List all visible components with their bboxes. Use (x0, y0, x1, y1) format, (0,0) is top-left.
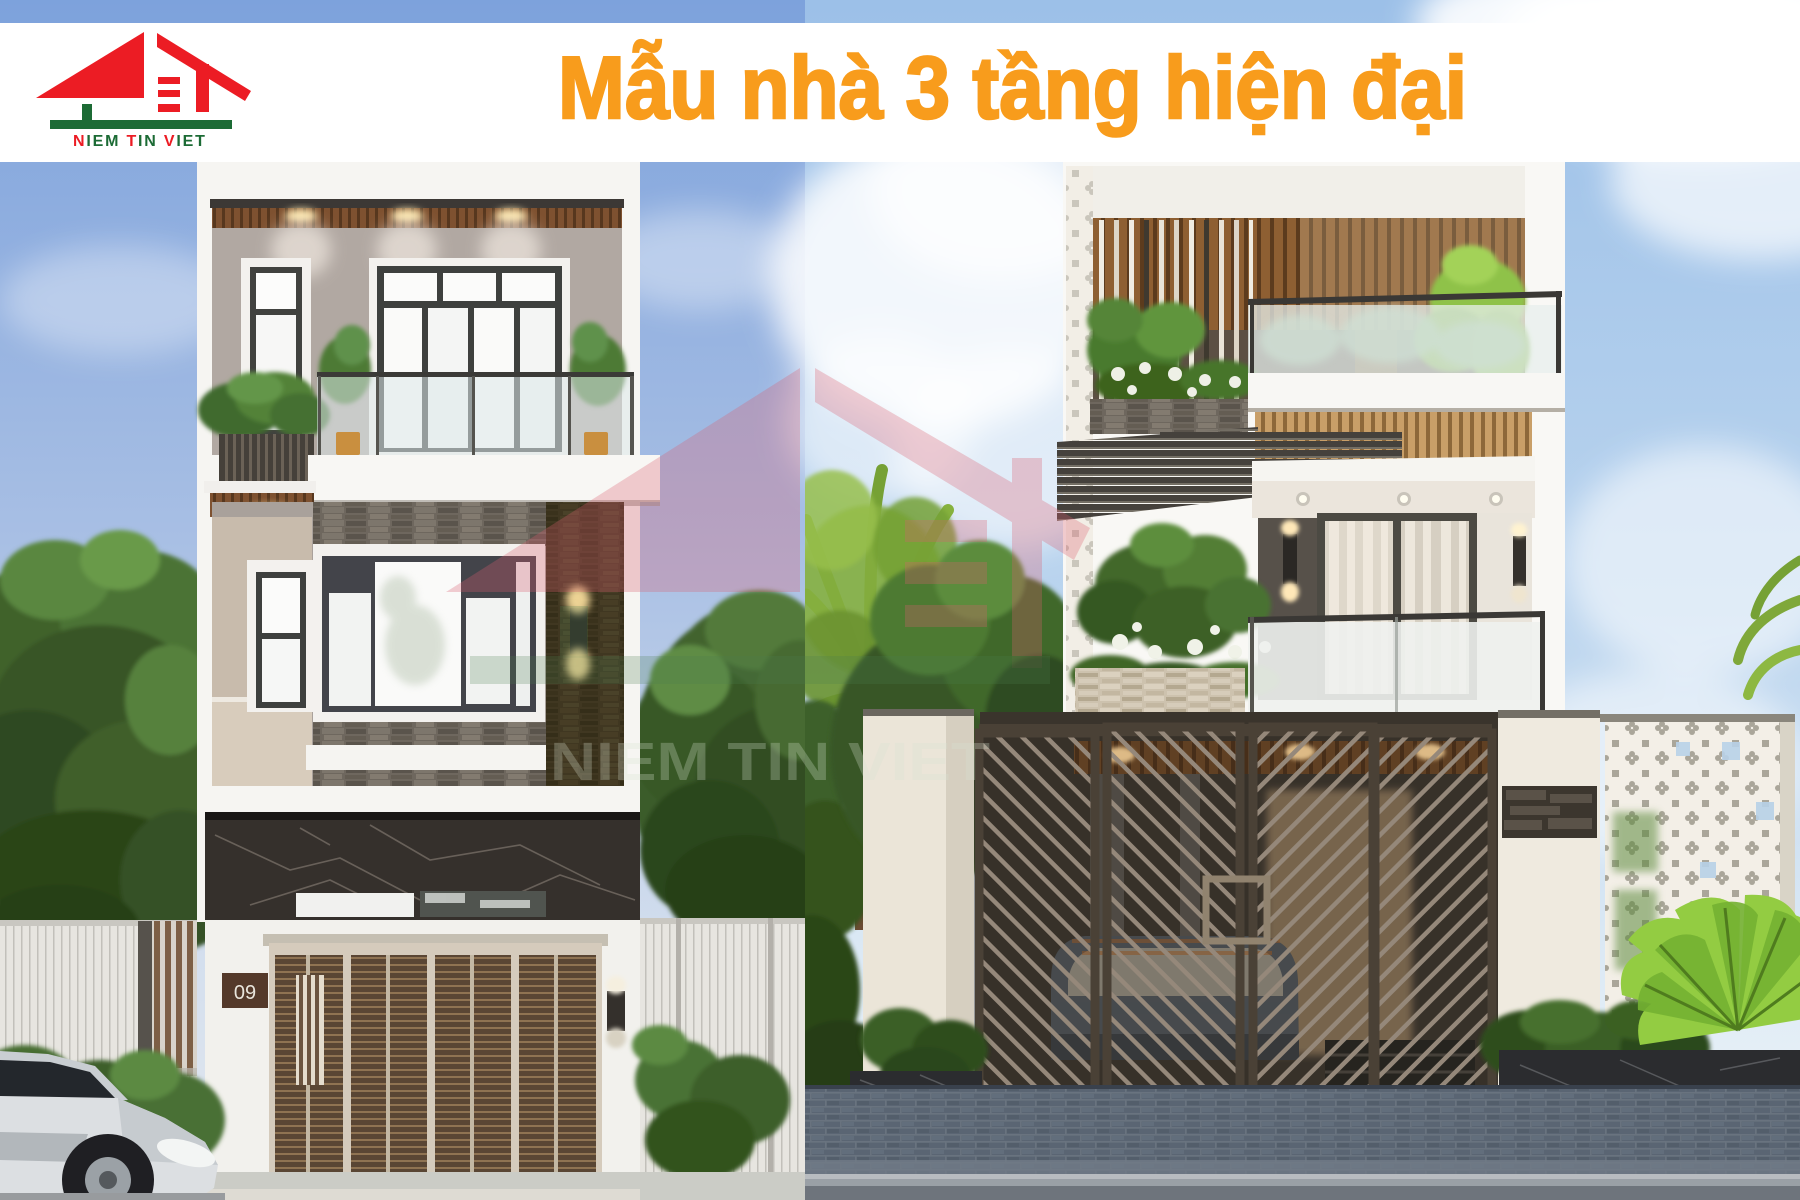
svg-text:09: 09 (234, 982, 256, 1004)
svg-text:NIEM TIN VIET: NIEM TIN VIET (550, 732, 990, 792)
svg-text:NIEM TIN VIET: NIEM TIN VIET (73, 133, 207, 150)
svg-text:Mẫu nhà 3 tầng hiện đại: Mẫu nhà 3 tầng hiện đại (558, 38, 1467, 137)
